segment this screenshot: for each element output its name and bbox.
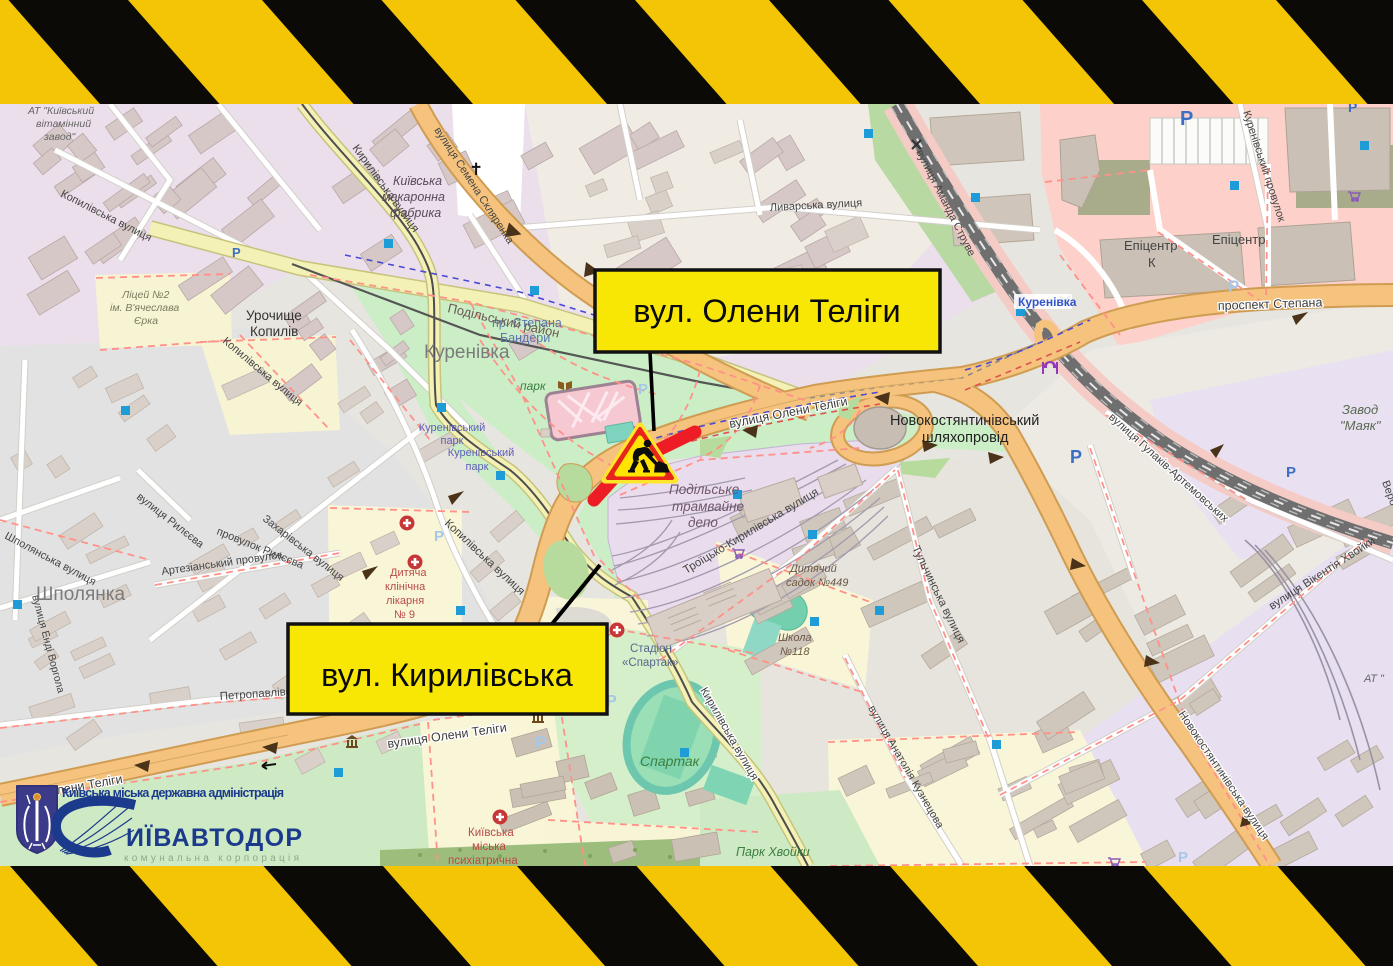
svg-text:P: P xyxy=(638,381,648,398)
svg-text:фабрика: фабрика xyxy=(390,206,441,220)
svg-text:шляхопровід: шляхопровід xyxy=(922,430,1009,446)
svg-text:Урочище: Урочище xyxy=(246,308,302,323)
svg-text:комунальна корпорація: комунальна корпорація xyxy=(124,853,302,864)
svg-text:P: P xyxy=(535,733,546,752)
svg-text:вул. Олени Теліги: вул. Олени Теліги xyxy=(633,293,900,329)
svg-text:вітамінний: вітамінний xyxy=(36,118,91,130)
svg-text:Куренівський: Куренівський xyxy=(448,447,515,459)
svg-text:Парк Хвойки: Парк Хвойки xyxy=(736,845,810,859)
svg-text:Єрка: Єрка xyxy=(134,315,158,327)
svg-text:Копилів: Копилів xyxy=(250,324,298,339)
svg-text:Куренівка: Куренівка xyxy=(1018,295,1077,309)
svg-text:Київська: Київська xyxy=(393,174,442,188)
svg-text:парк: парк xyxy=(465,461,488,473)
svg-text:№ 9: № 9 xyxy=(394,609,415,621)
svg-text:Дитячий: Дитячий xyxy=(788,563,837,575)
svg-text:психіатрична: психіатрична xyxy=(448,855,518,867)
svg-text:ИЇВАВТОДОР: ИЇВАВТОДОР xyxy=(126,824,304,852)
svg-text:P: P xyxy=(434,528,444,545)
svg-text:завод": завод" xyxy=(43,131,76,143)
svg-text:«Спартак»: «Спартак» xyxy=(622,657,678,669)
svg-text:Подільське: Подільське xyxy=(669,482,739,497)
svg-text:макаронна: макаронна xyxy=(382,190,445,204)
svg-text:садок №449: садок №449 xyxy=(786,577,848,589)
svg-text:Шполянка: Шполянка xyxy=(36,584,125,605)
svg-text:ім. В'ячеслава: ім. В'ячеслава xyxy=(110,302,179,314)
svg-text:парк: парк xyxy=(440,435,463,447)
svg-text:P: P xyxy=(1070,447,1082,467)
svg-text:вул. Кирилівська: вул. Кирилівська xyxy=(321,657,574,693)
svg-text:клінічна: клінічна xyxy=(385,581,426,593)
svg-text:Епіцентр: Епіцентр xyxy=(1212,232,1266,247)
svg-text:P: P xyxy=(1180,108,1193,130)
svg-text:Ліцей №2: Ліцей №2 xyxy=(121,289,170,301)
svg-text:трамвайне: трамвайне xyxy=(672,499,744,514)
svg-text:P: P xyxy=(1228,277,1239,296)
svg-text:Завод: Завод xyxy=(1342,402,1378,417)
svg-text:P: P xyxy=(232,245,241,260)
svg-text:депо: депо xyxy=(688,515,718,530)
svg-text:Спартак: Спартак xyxy=(640,753,701,769)
svg-text:P: P xyxy=(1286,464,1296,481)
svg-text:Куренівка: Куренівка xyxy=(424,342,510,363)
svg-text:АТ ": АТ " xyxy=(1363,673,1385,685)
svg-text:P: P xyxy=(1178,849,1188,866)
svg-text:лікарня: лікарня xyxy=(386,595,424,607)
svg-text:парк: парк xyxy=(520,379,547,393)
svg-text:Дитяча: Дитяча xyxy=(390,567,427,579)
svg-text:Новокостянтинівський: Новокостянтинівський xyxy=(890,413,1039,429)
svg-text:№118: №118 xyxy=(780,646,810,658)
svg-text:К: К xyxy=(1148,255,1156,270)
svg-text:АТ "Київський: АТ "Київський xyxy=(27,105,94,117)
svg-text:Куренівський: Куренівський xyxy=(419,422,486,434)
svg-text:"Маяк": "Маяк" xyxy=(1340,418,1382,433)
svg-text:Епіцентр: Епіцентр xyxy=(1124,238,1178,253)
svg-text:Стадіон: Стадіон xyxy=(630,643,672,655)
svg-text:Школа: Школа xyxy=(778,632,812,644)
svg-text:міська: міська xyxy=(472,841,506,853)
svg-text:Київська: Київська xyxy=(468,827,514,839)
